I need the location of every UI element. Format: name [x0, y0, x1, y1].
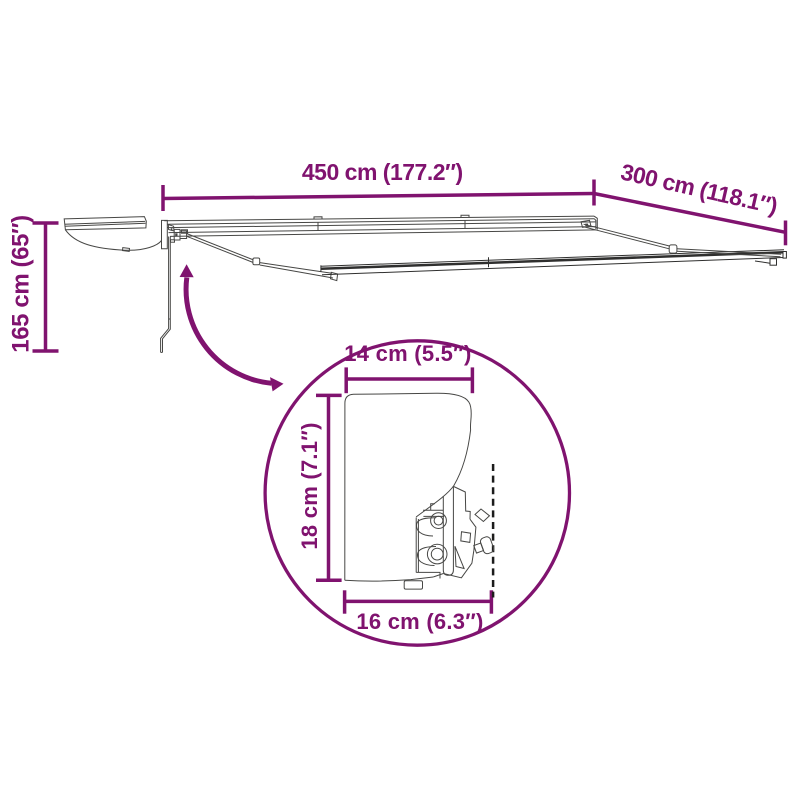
svg-text:14 cm (5.5″): 14 cm (5.5″): [344, 341, 471, 366]
svg-text:165 cm (65″): 165 cm (65″): [8, 215, 35, 352]
svg-text:450 cm (177.2″): 450 cm (177.2″): [302, 159, 463, 185]
svg-text:16 cm (6.3″): 16 cm (6.3″): [356, 609, 483, 634]
svg-text:18 cm (7.1″): 18 cm (7.1″): [297, 422, 322, 549]
